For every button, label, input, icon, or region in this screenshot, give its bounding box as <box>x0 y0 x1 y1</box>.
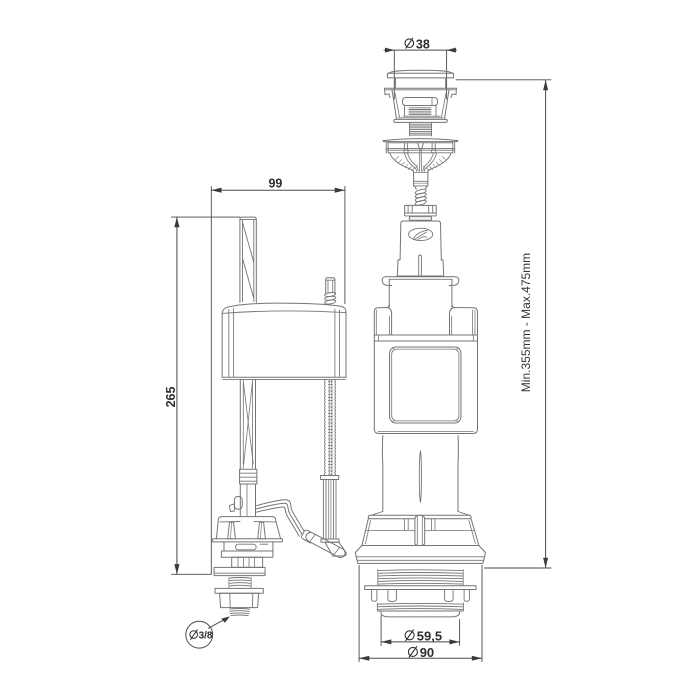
svg-text:59,5: 59,5 <box>417 628 442 643</box>
svg-text:99: 99 <box>268 177 282 191</box>
svg-text:38: 38 <box>416 37 430 51</box>
svg-text:Min.355mm - Max.475mm: Min.355mm - Max.475mm <box>519 253 533 392</box>
svg-text:265: 265 <box>164 387 178 408</box>
svg-text:3/8: 3/8 <box>199 631 213 642</box>
svg-text:90: 90 <box>420 645 434 660</box>
